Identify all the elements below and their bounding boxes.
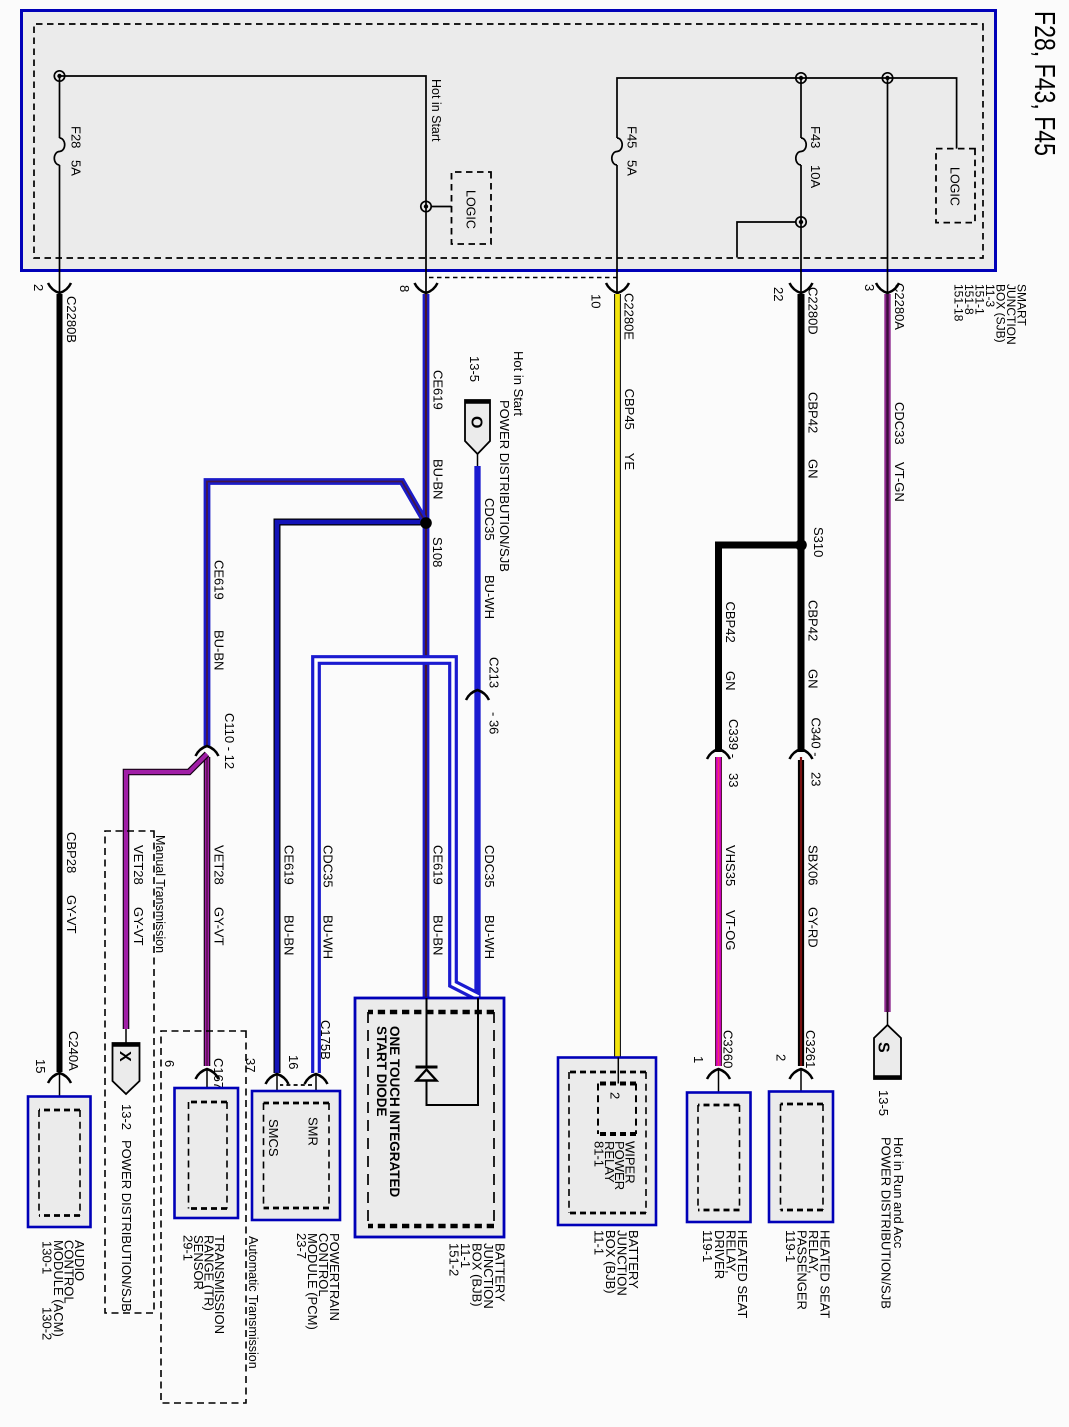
svg-text:BU-BN: BU-BN [431,459,446,499]
svg-text:C2280B: C2280B [64,296,79,343]
svg-text:POWER DISTRIBUTION/SJB: POWER DISTRIBUTION/SJB [879,1137,894,1309]
svg-text:13-5: 13-5 [876,1090,891,1116]
svg-text:C2280D: C2280D [806,287,821,335]
svg-text:CBP42: CBP42 [723,602,738,643]
svg-text:GY-VT: GY-VT [131,907,146,946]
svg-text:CE619: CE619 [212,560,227,600]
svg-text:C3260: C3260 [721,1030,736,1068]
svg-text:VHS35: VHS35 [723,845,738,886]
svg-text:F28: F28 [69,126,84,148]
svg-text:15: 15 [33,1059,48,1073]
svg-text:CDC33: CDC33 [892,402,907,445]
svg-text:1: 1 [691,1056,706,1063]
svg-text:F45: F45 [625,126,640,148]
svg-text:BU-WH: BU-WH [482,575,497,619]
svg-text:13-5: 13-5 [467,356,482,382]
svg-text:16: 16 [286,1055,301,1069]
svg-text:BU-BN: BU-BN [282,915,297,955]
svg-text:S108: S108 [430,537,445,567]
svg-text:2: 2 [608,1092,623,1099]
svg-text:VT-OG: VT-OG [723,910,738,950]
svg-text:CE619: CE619 [431,370,446,410]
svg-text:CBP42: CBP42 [806,392,821,433]
svg-text:2: 2 [31,284,46,291]
svg-text:6: 6 [162,1060,177,1067]
svg-text:S: S [875,1042,892,1053]
svg-text:23-7: 23-7 [294,1233,309,1259]
svg-text:10A: 10A [808,165,823,188]
svg-text:81-1: 81-1 [592,1141,607,1167]
svg-text:C110 - 12: C110 - 12 [222,713,237,769]
svg-text:C175B: C175B [318,1020,333,1060]
svg-text:151-18: 151-18 [952,284,966,322]
svg-text:C3261: C3261 [803,1030,818,1068]
svg-text:BU-WH: BU-WH [321,915,336,959]
svg-text:Manual Transmission: Manual Transmission [153,835,167,953]
svg-text:130-2: 130-2 [40,1307,55,1340]
svg-text:C339 -: C339 - [726,719,741,758]
svg-text:151-2: 151-2 [447,1243,462,1276]
svg-text:2: 2 [774,1054,789,1061]
svg-text:VET28: VET28 [212,845,227,885]
svg-text:CDC35: CDC35 [482,498,497,541]
svg-text:CDC35: CDC35 [482,845,497,888]
svg-text:BU-WH: BU-WH [482,915,497,959]
svg-text:11-1: 11-1 [592,1230,607,1255]
svg-text:POWER DISTRIBUTION/SJB: POWER DISTRIBUTION/SJB [119,1140,134,1312]
svg-text:GY-RD: GY-RD [806,907,821,948]
svg-text:C2280E: C2280E [622,293,637,340]
svg-text:VET28: VET28 [131,845,146,885]
svg-text:CDC35: CDC35 [321,845,336,888]
svg-text:C167: C167 [211,1058,226,1089]
svg-text:10: 10 [589,294,604,308]
svg-text:F43: F43 [808,126,823,148]
svg-text:BU-BN: BU-BN [431,915,446,955]
svg-text:- 36: - 36 [487,712,502,734]
svg-text:Automatic Transmission: Automatic Transmission [246,1236,260,1369]
svg-text:LOGIC: LOGIC [464,190,478,229]
svg-text:F28, F43, F45: F28, F43, F45 [1028,11,1060,156]
svg-text:C2280A: C2280A [892,283,907,330]
svg-text:3: 3 [862,284,877,291]
svg-text:YE: YE [622,453,637,471]
svg-text:29-1: 29-1 [181,1235,196,1261]
svg-text:119-1: 119-1 [783,1230,798,1262]
svg-text:5A: 5A [69,160,84,176]
svg-text:GY-VT: GY-VT [212,907,227,946]
svg-text:START DIODE: START DIODE [374,1026,389,1117]
svg-text:22: 22 [771,287,786,301]
svg-text:SMR: SMR [306,1117,321,1146]
svg-text:VT-GN: VT-GN [892,462,907,502]
svg-text:119-1: 119-1 [700,1230,715,1262]
svg-text:LOGIC: LOGIC [948,167,962,206]
svg-text:8: 8 [397,285,412,292]
svg-text:POWER DISTRIBUTION/SJB: POWER DISTRIBUTION/SJB [497,400,512,572]
svg-text:GN: GN [806,459,821,479]
svg-text:33: 33 [726,773,741,787]
svg-text:23: 23 [809,772,824,786]
svg-text:Hot in Start: Hot in Start [429,79,443,142]
svg-text:GN: GN [806,669,821,689]
svg-text:C213: C213 [487,657,502,688]
svg-text:GY-VT: GY-VT [64,895,79,934]
svg-text:X: X [116,1051,133,1062]
svg-text:SMCS: SMCS [266,1119,281,1157]
svg-text:CBP28: CBP28 [64,832,79,873]
svg-text:GN: GN [723,671,738,691]
svg-text:Hot in Start: Hot in Start [511,351,526,416]
svg-text:SBX06: SBX06 [806,845,821,885]
svg-text:BU-BN: BU-BN [212,630,227,670]
svg-text:130-1: 130-1 [40,1241,55,1274]
svg-text:CE619: CE619 [282,845,297,885]
svg-text:13-2: 13-2 [119,1104,134,1130]
svg-text:C340 -: C340 - [809,718,824,757]
svg-text:O: O [468,416,485,428]
svg-text:5A: 5A [625,160,640,176]
svg-text:C240A: C240A [66,1031,81,1071]
svg-text:S310: S310 [811,527,826,557]
svg-text:CBP45: CBP45 [622,389,637,430]
svg-text:CE619: CE619 [431,845,446,885]
svg-text:CBP42: CBP42 [806,600,821,641]
